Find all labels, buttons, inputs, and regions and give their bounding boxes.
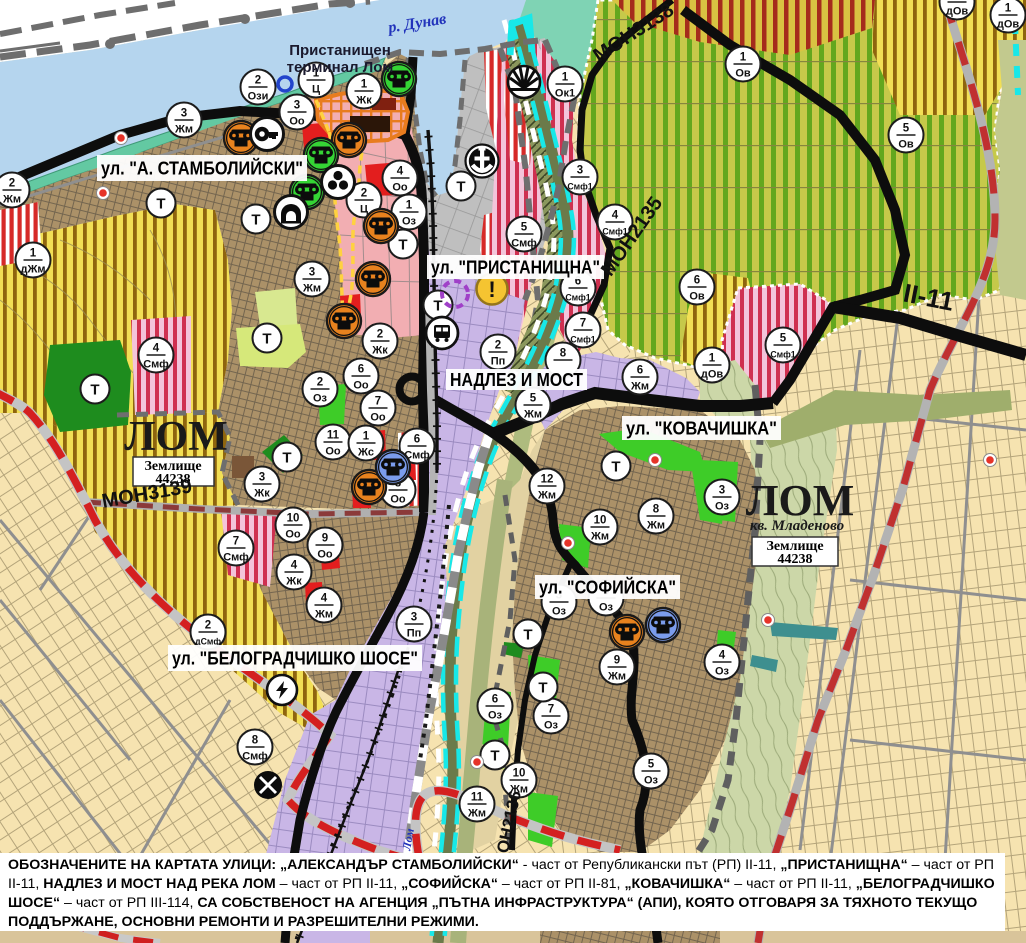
svg-text:Смф1: Смф1 [570, 335, 595, 345]
svg-text:4: 4 [153, 343, 160, 355]
svg-text:1: 1 [740, 52, 747, 64]
svg-text:Оз: Оз [402, 216, 417, 228]
svg-text:Жс: Жс [357, 447, 374, 459]
svg-text:Смф1: Смф1 [567, 182, 592, 192]
svg-text:10: 10 [287, 513, 300, 525]
svg-text:II-11, НАДЛЕЗ И МОСТ НАД РЕКА: II-11, НАДЛЕЗ И МОСТ НАД РЕКА ЛОМ – част… [8, 874, 995, 892]
svg-text:4: 4 [321, 593, 328, 605]
svg-text:Т: Т [90, 382, 99, 399]
svg-text:Жк: Жк [285, 576, 302, 588]
svg-text:терминал Лом: терминал Лом [287, 59, 394, 76]
svg-text:2: 2 [205, 620, 211, 632]
svg-text:Оо: Оо [317, 549, 333, 561]
svg-text:1: 1 [562, 72, 569, 84]
svg-text:5: 5 [521, 222, 528, 234]
svg-text:НАДЛЕЗ И МОСТ: НАДЛЕЗ И МОСТ [450, 369, 584, 390]
svg-text:7: 7 [580, 318, 586, 330]
svg-text:Оо: Оо [285, 529, 301, 541]
svg-text:10: 10 [594, 515, 607, 527]
svg-text:Смф1: Смф1 [565, 293, 590, 303]
svg-text:12: 12 [541, 474, 554, 486]
svg-text:Ози: Ози [248, 91, 269, 103]
svg-text:дОв: дОв [997, 19, 1020, 31]
svg-text:5: 5 [648, 759, 655, 771]
svg-text:Оо: Оо [289, 116, 305, 128]
svg-text:3: 3 [411, 612, 417, 624]
svg-text:6: 6 [358, 364, 364, 376]
svg-text:9: 9 [614, 655, 620, 667]
svg-text:3: 3 [181, 108, 187, 120]
svg-text:2: 2 [495, 340, 501, 352]
svg-text:Т: Т [251, 212, 260, 229]
svg-text:ул. "КОВАЧИШКА": ул. "КОВАЧИШКА" [626, 417, 777, 438]
svg-text:ЛОМ: ЛОМ [124, 414, 228, 460]
svg-text:Оз: Оз [313, 393, 328, 405]
svg-text:Пп: Пп [407, 628, 422, 640]
svg-text:Жм: Жм [174, 124, 193, 136]
svg-text:5: 5 [530, 393, 537, 405]
svg-text:4: 4 [397, 166, 404, 178]
svg-text:Жм: Жм [467, 808, 486, 820]
svg-text:Жм: Жм [590, 531, 609, 543]
svg-text:Ц: Ц [360, 204, 368, 216]
svg-text:дОв: дОв [946, 6, 969, 18]
svg-text:10: 10 [513, 768, 526, 780]
svg-text:Оо: Оо [353, 380, 369, 392]
svg-text:!: ! [488, 277, 495, 302]
svg-text:Жк: Жк [253, 488, 270, 500]
svg-text:3: 3 [309, 267, 315, 279]
svg-text:Т: Т [538, 680, 547, 697]
svg-text:Оз: Оз [715, 666, 730, 678]
svg-text:3: 3 [259, 472, 265, 484]
svg-text:5: 5 [780, 333, 787, 345]
svg-text:Жк: Жк [371, 345, 388, 357]
svg-text:1: 1 [406, 200, 413, 212]
svg-text:Оз: Оз [715, 501, 730, 513]
svg-text:Жм: Жм [523, 409, 542, 421]
svg-text:ул. "СОФИЙСКА": ул. "СОФИЙСКА" [539, 576, 676, 597]
svg-text:Ов: Ов [689, 291, 705, 303]
svg-text:Т: Т [262, 331, 271, 348]
svg-text:11: 11 [327, 430, 340, 442]
svg-text:1: 1 [954, 0, 961, 2]
svg-text:Жм: Жм [646, 520, 665, 532]
svg-text:Жм: Жм [630, 381, 649, 393]
svg-text:2: 2 [317, 377, 323, 389]
svg-text:Жм: Жм [314, 609, 333, 621]
svg-text:7: 7 [233, 536, 239, 548]
svg-text:Жк: Жк [355, 95, 372, 107]
svg-text:3: 3 [294, 100, 300, 112]
svg-text:кв. Младеново: кв. Младеново [750, 518, 844, 534]
svg-text:8: 8 [653, 504, 660, 516]
svg-text:ул. "ПРИСТАНИЩНА": ул. "ПРИСТАНИЩНА" [431, 256, 600, 277]
svg-text:4: 4 [612, 210, 619, 222]
svg-text:1: 1 [30, 248, 37, 260]
svg-text:ул. "БЕЛОГРАДЧИШКО ШОСЕ": ул. "БЕЛОГРАДЧИШКО ШОСЕ" [172, 647, 418, 668]
svg-text:Ов: Ов [898, 139, 914, 151]
svg-text:ШОСЕ“ – част от РП III-114, СА: ШОСЕ“ – част от РП III-114, СА СОБСТВЕНО… [8, 895, 977, 911]
svg-text:Т: Т [490, 748, 499, 765]
svg-text:8: 8 [252, 735, 259, 747]
svg-text:2: 2 [377, 329, 383, 341]
svg-text:1: 1 [361, 79, 368, 91]
svg-text:11: 11 [471, 792, 484, 804]
svg-text:3: 3 [719, 485, 725, 497]
svg-text:Оо: Оо [392, 182, 408, 194]
svg-text:Ов: Ов [735, 68, 751, 80]
svg-text:Т: Т [156, 196, 165, 213]
svg-text:6: 6 [492, 694, 498, 706]
svg-text:Оз: Оз [599, 602, 614, 614]
svg-text:Ок1: Ок1 [555, 88, 575, 100]
svg-text:2: 2 [361, 188, 367, 200]
svg-text:Жм: Жм [2, 194, 21, 206]
svg-text:5: 5 [903, 123, 910, 135]
svg-text:Жм: Жм [302, 283, 321, 295]
svg-text:Т: Т [433, 298, 442, 315]
svg-text:Жм: Жм [607, 671, 626, 683]
svg-text:ПОДДЪРЖАНЕ, ОСНОВНИ РЕМОНТИ И: ПОДДЪРЖАНЕ, ОСНОВНИ РЕМОНТИ И РАЗРЕШИТЕЛ… [8, 914, 479, 930]
svg-text:Оо: Оо [325, 446, 341, 458]
svg-text:Т: Т [456, 179, 465, 196]
svg-text:Ц: Ц [312, 84, 320, 96]
svg-text:Смф: Смф [143, 359, 169, 371]
svg-text:6: 6 [637, 365, 643, 377]
svg-text:Смф: Смф [511, 238, 537, 250]
svg-text:Оо: Оо [390, 494, 406, 506]
svg-text:ул. "А. СТАМБОЛИЙСКИ": ул. "А. СТАМБОЛИЙСКИ" [101, 157, 303, 178]
svg-text:Пристанищен: Пристанищен [289, 42, 391, 59]
svg-text:1: 1 [1005, 3, 1012, 15]
svg-text:4: 4 [291, 560, 298, 572]
svg-text:Смф: Смф [223, 552, 249, 564]
svg-text:Смф: Смф [242, 751, 268, 763]
svg-text:3: 3 [577, 165, 583, 177]
svg-text:Жм: Жм [537, 490, 556, 502]
svg-text:7: 7 [375, 396, 381, 408]
svg-text:9: 9 [322, 533, 328, 545]
svg-text:Т: Т [611, 459, 620, 476]
svg-text:6: 6 [694, 275, 700, 287]
svg-text:Т: Т [398, 237, 407, 254]
svg-text:ОБОЗНАЧЕНИТЕ НА КАРТАТА УЛИЦИ:: ОБОЗНАЧЕНИТЕ НА КАРТАТА УЛИЦИ: „АЛЕКСАНД… [8, 855, 994, 873]
svg-text:Т: Т [282, 450, 291, 467]
svg-text:44238: 44238 [778, 552, 813, 567]
svg-text:6: 6 [414, 434, 420, 446]
svg-text:2: 2 [255, 75, 261, 87]
svg-text:Оз: Оз [552, 606, 567, 618]
svg-text:дОв: дОв [701, 369, 724, 381]
svg-text:Смф1: Смф1 [770, 350, 795, 360]
svg-text:4: 4 [719, 650, 726, 662]
svg-text:1: 1 [709, 353, 716, 365]
svg-text:Оз: Оз [488, 710, 503, 722]
svg-text:7: 7 [548, 704, 554, 716]
svg-text:1: 1 [363, 431, 370, 443]
svg-text:8: 8 [560, 348, 567, 360]
svg-text:Т: Т [523, 627, 532, 644]
svg-text:Оз: Оз [644, 775, 659, 787]
svg-text:Оо: Оо [370, 412, 386, 424]
svg-text:2: 2 [9, 178, 15, 190]
svg-text:дЖм: дЖм [20, 264, 45, 276]
svg-text:Оз: Оз [544, 720, 559, 732]
svg-text:Пп: Пп [491, 356, 506, 368]
